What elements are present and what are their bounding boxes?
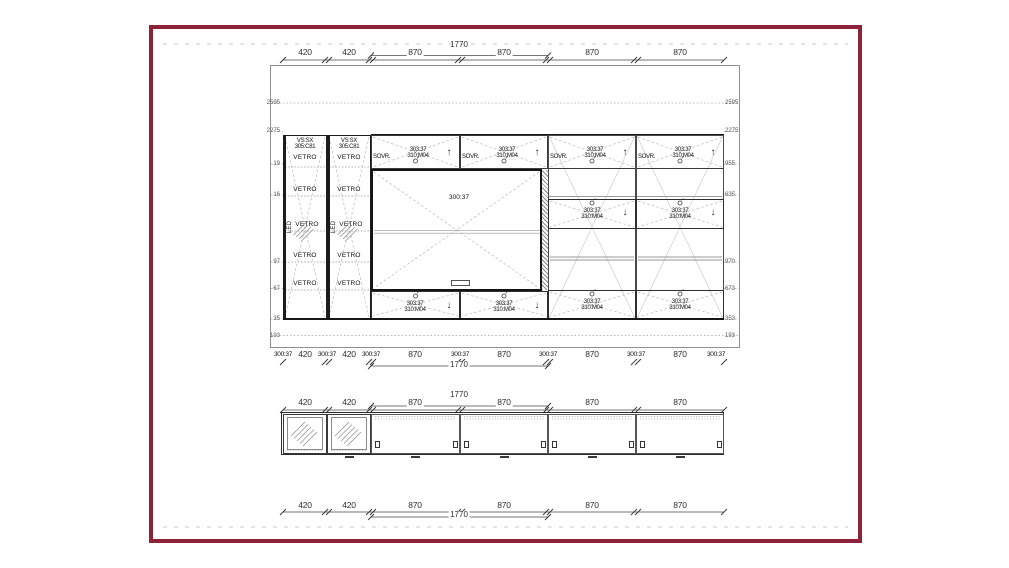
overall-dim-label: 1770 bbox=[449, 511, 470, 519]
dim-label: 870 bbox=[673, 48, 687, 57]
panel-code: 300:37 bbox=[318, 352, 336, 359]
cell-code: 303:37 bbox=[672, 208, 689, 214]
flap-up-arrow-icon: ↑ bbox=[535, 148, 540, 158]
vetro-label: VETRO bbox=[337, 281, 360, 288]
level-label: 353 bbox=[725, 316, 735, 322]
foot-mark bbox=[588, 456, 597, 459]
dim-label: 870 bbox=[673, 350, 687, 359]
dim-label: 420 bbox=[298, 48, 312, 57]
led-label: LED bbox=[331, 221, 337, 234]
cell-code: 303:37 bbox=[410, 147, 427, 153]
plan-glass-door-2-inner bbox=[331, 417, 367, 450]
cell-code: 303:37 bbox=[675, 147, 692, 153]
panel-code: 300:37 bbox=[539, 352, 557, 359]
hinge-icon bbox=[453, 441, 458, 448]
level-label: 955 bbox=[725, 161, 735, 167]
dim-label: 870 bbox=[673, 500, 687, 509]
foot-mark bbox=[500, 456, 509, 459]
panel-code: 300:37 bbox=[274, 352, 292, 359]
plan-cell-4 bbox=[636, 414, 724, 454]
vetro-label: VETRO bbox=[337, 154, 360, 161]
dim-label: 420 bbox=[342, 48, 356, 57]
overall-dim-label: 1770 bbox=[449, 361, 470, 369]
level-label: 67 bbox=[250, 286, 280, 292]
level-label: 193 bbox=[725, 333, 735, 339]
level-label: 635 bbox=[725, 192, 735, 198]
flap-down-arrow-icon: ↓ bbox=[711, 208, 716, 218]
hinge-icon bbox=[552, 441, 557, 448]
dim-label: 870 bbox=[585, 500, 599, 509]
cell-code: 303:37 bbox=[584, 299, 601, 305]
cell-code: 310:M04 bbox=[493, 307, 514, 313]
cell-code: 303:37 bbox=[587, 147, 604, 153]
dim-label: 420 bbox=[342, 398, 356, 407]
plan-cell-1 bbox=[371, 414, 460, 454]
vetro-label: VETRO bbox=[293, 281, 316, 288]
hinge-icon bbox=[464, 441, 469, 448]
dim-label: 870 bbox=[673, 398, 687, 407]
flap-up-arrow-icon: ↑ bbox=[711, 148, 716, 158]
dim-label: 870 bbox=[585, 48, 599, 57]
tower-code: 305:C81 bbox=[295, 144, 316, 150]
dim-label: 420 bbox=[298, 398, 312, 407]
dim-label: 870 bbox=[407, 48, 424, 57]
hinge-icon bbox=[541, 441, 546, 448]
cell-code: 303:37 bbox=[496, 301, 513, 307]
cell-code: 310:M04 bbox=[669, 214, 690, 220]
cell-code: 310:M04 bbox=[584, 153, 605, 159]
dim-label: 870 bbox=[408, 500, 422, 509]
dim-label: 870 bbox=[408, 350, 422, 359]
cell-code: 310:M04 bbox=[407, 153, 428, 159]
cell-code: 310:M04 bbox=[581, 214, 602, 220]
dim-label: 870 bbox=[407, 398, 424, 407]
flap-down-arrow-icon: ↓ bbox=[447, 301, 452, 311]
dim-label: 420 bbox=[298, 500, 312, 509]
tower-code: 305:C81 bbox=[339, 144, 360, 150]
drawing-page: 420 420 870 870 870 870 1770 2595 2275 1… bbox=[0, 0, 1009, 568]
flap-up-arrow-icon: ↑ bbox=[623, 148, 628, 158]
overall-dim-label: 1770 bbox=[450, 391, 468, 399]
cell-code: 303:37 bbox=[584, 208, 601, 214]
dim-label: 420 bbox=[298, 350, 312, 359]
led-label: LED bbox=[287, 221, 293, 234]
vetro-label: VETRO bbox=[337, 187, 360, 194]
cell-code: 303:37 bbox=[407, 301, 424, 307]
dim-label: 870 bbox=[497, 350, 511, 359]
hinge-icon bbox=[629, 441, 634, 448]
dim-label: 870 bbox=[496, 398, 513, 407]
cell-code: 310:M04 bbox=[669, 305, 690, 311]
dim-label: 870 bbox=[496, 48, 513, 57]
flap-down-arrow-icon: ↓ bbox=[623, 208, 628, 218]
plan-cell-3 bbox=[548, 414, 636, 454]
hinge-icon bbox=[717, 441, 722, 448]
level-label: 97 bbox=[250, 259, 280, 265]
flap-down-arrow-icon: ↓ bbox=[535, 301, 540, 311]
vetro-label: VETRO bbox=[293, 154, 316, 161]
panel-code: 300:37 bbox=[362, 352, 380, 359]
cabinet-bottom-edge bbox=[283, 318, 724, 320]
cell-code: 303:37 bbox=[499, 147, 516, 153]
tv-open-area bbox=[371, 169, 542, 291]
level-label: 16 bbox=[250, 192, 280, 198]
panel-code: 300:37 bbox=[707, 352, 725, 359]
panel-code: 300:37 bbox=[627, 352, 645, 359]
vetro-label: VETRO bbox=[337, 253, 360, 260]
hinge-icon bbox=[375, 441, 380, 448]
vetro-label: VETRO bbox=[339, 222, 362, 229]
overall-dim-label: 1770 bbox=[450, 41, 468, 49]
cell-code: 310:M04 bbox=[672, 153, 693, 159]
tv-area-code: 300:37 bbox=[449, 194, 469, 201]
level-label: 673 bbox=[725, 286, 735, 292]
vetro-label: VETRO bbox=[295, 222, 318, 229]
sovr-label: SOVR. bbox=[550, 154, 567, 160]
flap-up-arrow-icon: ↑ bbox=[447, 148, 452, 158]
cell-code: 310:M04 bbox=[496, 153, 517, 159]
dim-label: 870 bbox=[585, 398, 599, 407]
level-label: 193 bbox=[250, 333, 280, 339]
foot-mark bbox=[676, 456, 685, 459]
plan-glass-door-1-inner bbox=[287, 417, 323, 450]
sovr-label: SOVR. bbox=[373, 154, 390, 160]
vetro-label: VETRO bbox=[293, 187, 316, 194]
cell-code: 310:M04 bbox=[404, 307, 425, 313]
cell-code: 303:37 bbox=[672, 299, 689, 305]
tv-bracket bbox=[451, 280, 470, 286]
vetro-label: VETRO bbox=[293, 253, 316, 260]
level-label: 970 bbox=[725, 259, 735, 265]
dim-label: 870 bbox=[497, 500, 511, 509]
dim-label: 870 bbox=[585, 350, 599, 359]
panel-code: 300:37 bbox=[451, 352, 469, 359]
level-label: 2275 bbox=[725, 128, 738, 134]
level-label: 35 bbox=[250, 316, 280, 322]
cell-code: 310:M04 bbox=[581, 305, 602, 311]
sovr-label: SOVR. bbox=[638, 154, 655, 160]
foot-mark bbox=[345, 456, 354, 459]
dim-label: 420 bbox=[342, 350, 356, 359]
sovr-label: SOVR. bbox=[462, 154, 479, 160]
plan-cell-2 bbox=[460, 414, 548, 454]
level-label: 2275 bbox=[250, 128, 280, 134]
hinge-icon bbox=[640, 441, 645, 448]
level-label: 2595 bbox=[725, 100, 738, 106]
level-label: 19 bbox=[250, 161, 280, 167]
dim-label: 420 bbox=[342, 500, 356, 509]
level-label: 2595 bbox=[250, 100, 280, 106]
foot-mark bbox=[411, 456, 420, 459]
